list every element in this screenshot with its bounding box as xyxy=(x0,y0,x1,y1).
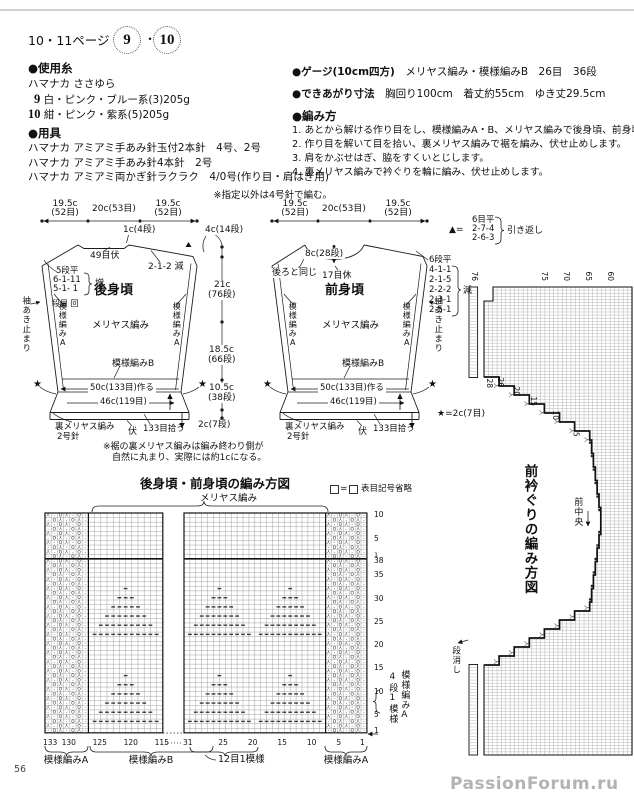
svg-text:人: 人 xyxy=(583,605,590,611)
howto-title: ●編み方 xyxy=(292,110,337,123)
yarn-item-10: 10 紺・ピンク・紫系(5)205g xyxy=(28,107,169,121)
back-shoulder-dec: 2-1-2 減 xyxy=(146,262,186,272)
svg-text:人: 人 xyxy=(537,632,544,638)
chart-number: 10 xyxy=(374,511,384,520)
chart-number: 1 xyxy=(374,727,379,736)
howto-step: 2. 作り目を解いて目を拾い、裏メリヤス編みで裾を編み、伏せ止めします。 xyxy=(292,139,626,150)
bottom-chart-title: 後身頃・前身頃の編み方図 xyxy=(140,477,290,491)
neck-chart-title: 前衿ぐりの編み方図 xyxy=(521,464,537,634)
back-neck-drop: 1c(4段) xyxy=(121,225,157,235)
svg-text:人: 人 xyxy=(537,410,544,416)
chart-side-repeat-label: 4段1模様 xyxy=(387,672,397,732)
chart-pattern-b-label: 模様編みB xyxy=(118,756,184,767)
front-piece-name: 前身頃 xyxy=(325,284,364,299)
chart-number: 70 xyxy=(561,272,570,282)
chart-number: 15 xyxy=(374,664,384,673)
finished-size-value: 胸回り100cm 着丈約55cm ゆき丈29.5cm xyxy=(385,88,605,100)
back-pattern-a-left: 模様編みA xyxy=(58,302,67,354)
back-pattern-b: 模様編みB xyxy=(112,359,154,369)
chart-number: 25 xyxy=(374,618,384,627)
front-same-as-back: 後ろと同じ xyxy=(270,268,319,278)
chart-number: 120 xyxy=(124,739,138,748)
gauge-title: ●ゲージ(10cm四方) xyxy=(292,66,395,78)
chart-number: 133 xyxy=(43,739,57,748)
back-pickup: 133目拾う xyxy=(143,425,185,435)
measure-18-5c-rows: (66段) xyxy=(206,355,237,365)
back-inc-row: 5-1- 1 xyxy=(53,285,78,295)
star-marker: ★ xyxy=(198,379,207,391)
measure-2c: 2c(7段) xyxy=(196,420,232,430)
svg-text:O: O xyxy=(71,728,75,734)
yarn-item-9: 9 白・ピンク・ブルー系(3)205g xyxy=(34,92,190,106)
measure-21c-rows: (76段) xyxy=(206,290,237,300)
chart-number: 115 xyxy=(155,739,169,748)
legend-empty-square xyxy=(330,485,339,494)
neck-chart-front-center: 前中央 xyxy=(572,497,582,537)
howto-step: 1. あとから解ける作り目をし、模様編みA・B、メリヤス編みで後身頃、前身頃を編… xyxy=(292,125,634,136)
neck-chart-erase-label: 段消し xyxy=(450,646,460,686)
chart-number: 5 xyxy=(374,535,379,544)
front-neck-depth: 8c(28段) xyxy=(303,249,345,259)
chart-number: 20 xyxy=(374,641,384,650)
yarn-9-desc: 白・ピンク・ブルー系(3)205g xyxy=(44,94,190,106)
svg-text:O: O xyxy=(350,728,354,734)
chart-number: 10 xyxy=(374,688,384,697)
chart-number: 130 xyxy=(62,739,76,748)
back-stockinette: メリヤス編み xyxy=(92,321,149,332)
star-legend: ★=2c(7目) xyxy=(437,409,485,419)
back-width-left-sts: (52目) xyxy=(47,208,83,218)
chart-number: 15 xyxy=(528,397,537,407)
tool-item: ハマナカ アミアミ手あみ針4本針 2号 xyxy=(28,157,212,169)
front-needle-2: 2号針 xyxy=(287,433,309,443)
front-hem-width: 46c(119目) xyxy=(328,398,379,408)
body-stitch-charts: 人-O人-O--O人-O人-人-O人-O--O人-O人-人-O人-O--O人-O… xyxy=(45,513,367,734)
design-number-badge-10: 10 xyxy=(153,26,181,54)
back-piece-name: 後身頃 xyxy=(94,284,133,299)
chart-number: 25 xyxy=(218,739,228,748)
chart-number: 31 xyxy=(183,739,193,748)
howto-step: 3. 肩をかぶせはぎ、脇をすくいとじします。 xyxy=(292,153,489,164)
back-neck-bindoff: 49目伏 xyxy=(88,251,121,261)
front-pattern-a-right: 模様編みA xyxy=(402,302,411,354)
howto-step: 4. 裏メリヤス編みで衿ぐりを輪に編み、伏せ止めします。 xyxy=(292,167,548,178)
gauge-line: ●ゲージ(10cm四方) メリヤス編み・模様編みB 26目 36段 xyxy=(292,66,597,78)
chart-number: 15 xyxy=(277,739,287,748)
star-marker: ★ xyxy=(428,379,437,391)
svg-text:人: 人 xyxy=(553,623,560,629)
yarn-brand: ハマナカ ささゆら xyxy=(28,78,115,90)
chart-number: 5 xyxy=(571,432,580,437)
materials-title: ●使用糸 xyxy=(28,62,73,75)
svg-text:人: 人 xyxy=(58,728,63,734)
legend-text: 表目記号省略 xyxy=(361,485,412,495)
chart-number: 38 xyxy=(374,557,384,566)
finished-size-title: ●できあがり寸法 xyxy=(292,88,375,100)
svg-text:人: 人 xyxy=(522,641,529,647)
chart-number: 5 xyxy=(374,711,379,720)
pattern-page: 人人人人人人人人人人人人人人 人-O人-O--O人-O人-人-O人-O--O人-… xyxy=(0,0,634,800)
svg-text:人: 人 xyxy=(492,659,499,665)
chart-number: 65 xyxy=(583,272,592,282)
front-cast-on: 50c(133目)作る xyxy=(318,384,386,394)
page-number: 56 xyxy=(14,765,26,776)
chart-number: 20 xyxy=(511,387,520,397)
design-number-9: 9 xyxy=(123,32,131,49)
front-bind-off: 伏 xyxy=(358,427,367,437)
front-stockinette: メリヤス編み xyxy=(322,321,379,332)
design-number-badge-9: 9 xyxy=(113,26,141,54)
star-marker: ★ xyxy=(263,379,272,391)
back-sleeve-stop: 袖あき止まり xyxy=(20,296,30,362)
design-number-10: 10 xyxy=(160,32,175,49)
watermark: PassionForum.ru xyxy=(450,774,619,794)
chart-number: 35 xyxy=(374,571,384,580)
chart-pattern-a-left-label: 模様編みA xyxy=(42,756,90,767)
front-width-center: 20c(53目) xyxy=(322,204,366,214)
svg-text:人: 人 xyxy=(568,614,575,620)
chart-pattern-a-right-label: 模様編みA xyxy=(320,756,372,767)
svg-text:人: 人 xyxy=(507,650,514,656)
chart-repeat-label: 12目1模様 xyxy=(218,755,265,766)
chart-number: 60 xyxy=(605,272,614,282)
yarn-10-desc: 紺・ピンク・紫系(5)205g xyxy=(44,109,169,121)
chart-number: 20 xyxy=(248,739,258,748)
chart-number: 5 xyxy=(336,739,341,748)
front-neck-hold: 17目休 xyxy=(320,271,353,281)
star-marker: ★ xyxy=(33,379,42,391)
measure-4c: 4c(14段) xyxy=(203,225,245,235)
shoulder-turn-marker xyxy=(186,242,192,247)
measure-10-5c: 10.5c xyxy=(207,383,236,393)
tool-item: ハマナカ アミアミ両かぎ針ラクラク 4/0号(作り目・肩はぎ用) xyxy=(28,171,329,183)
front-neckline-chart: 人人人人人人人人人人人人人人 xyxy=(469,287,632,755)
chart-side-pattern-label: 模様編みA xyxy=(399,670,409,730)
measure-10-5c-rows: (38段) xyxy=(206,393,237,403)
tools-title: ●用具 xyxy=(28,127,61,140)
page-reference: 10・11ページ xyxy=(28,34,110,48)
yarn-10-number: 10 xyxy=(28,107,41,121)
chart-number: 75 xyxy=(539,272,548,282)
turn-legend-label: 引き返し xyxy=(507,226,543,236)
back-bind-off: 伏 xyxy=(128,427,137,437)
front-dec-mark: 減 xyxy=(463,286,472,296)
back-width-right-sts: (52目) xyxy=(150,208,186,218)
chart-stockinette-label: メリヤス編み xyxy=(200,494,257,505)
chart-number: 26 xyxy=(495,378,504,388)
chart-number: 10 xyxy=(550,411,559,421)
finished-size-line: ●できあがり寸法 胸回り100cm 着丈約55cm ゆき丈29.5cm xyxy=(292,88,605,100)
chart-number: 30 xyxy=(374,595,384,604)
chart-number: 125 xyxy=(93,739,107,748)
legend-equals: = xyxy=(340,484,348,494)
chart-number: 28 xyxy=(484,379,493,389)
legend-knit-square xyxy=(349,485,358,494)
turn-legend-row: 2-6-3 xyxy=(472,234,494,244)
svg-text:人: 人 xyxy=(338,728,343,734)
front-width-right-sts: (52目) xyxy=(380,208,416,218)
svg-text:人: 人 xyxy=(583,437,590,443)
front-sleeve-stop: 袖あき止まり xyxy=(432,296,442,362)
back-hem-width: 46c(119目) xyxy=(98,398,149,408)
back-pattern-a-right: 模様編みA xyxy=(172,302,181,354)
front-pickup: 133目拾う xyxy=(373,425,415,435)
front-width-left-sts: (52目) xyxy=(277,208,313,218)
svg-text:O: O xyxy=(333,728,337,734)
back-width-center: 20c(53目) xyxy=(92,204,136,214)
measure-21c: 21c xyxy=(212,280,232,290)
chart-number: 76 xyxy=(469,272,478,282)
back-cast-on: 50c(133目)作る xyxy=(88,384,156,394)
chart-number: 1 xyxy=(360,739,365,748)
turn-legend-symbol: ▲= xyxy=(449,225,463,235)
chart-number: 10 xyxy=(307,739,317,748)
tool-item: ハマナカ アミアミ手あみ針玉付2本針 4号、2号 xyxy=(28,142,261,154)
svg-text:人: 人 xyxy=(356,728,361,734)
front-pattern-a-left: 模様編みA xyxy=(288,302,297,354)
back-needle-2: 2号針 xyxy=(57,433,79,443)
measure-18-5c: 18.5c xyxy=(207,345,236,355)
gauge-value: メリヤス編み・模様編みB 26目 36段 xyxy=(405,66,596,78)
svg-text:人: 人 xyxy=(77,728,82,734)
front-pattern-b: 模様編みB xyxy=(342,359,384,369)
yarn-9-number: 9 xyxy=(34,92,40,106)
hem-note-line2: 自然に丸まり、実際には約1cになる。 xyxy=(112,453,266,463)
hem-note-line1: ※裾の裏メリヤス編みは編み終わり側が xyxy=(103,442,264,452)
